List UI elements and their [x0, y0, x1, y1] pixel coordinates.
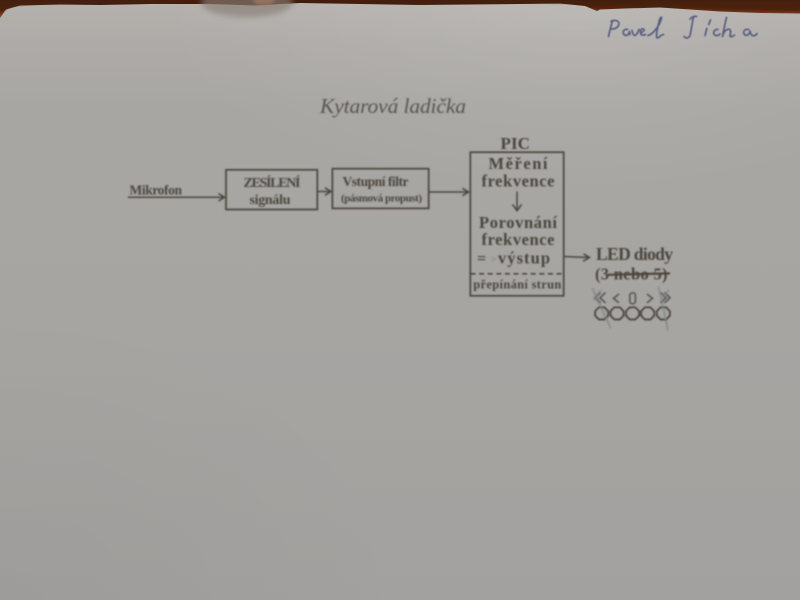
svg-text:přepínání strun: přepínání strun: [473, 278, 561, 292]
svg-text:(pásmová propust): (pásmová propust): [341, 193, 422, 205]
svg-text:výstup: výstup: [498, 249, 550, 268]
svg-text:PIC: PIC: [500, 134, 530, 153]
svg-text:ZESÍLENÍ: ZESÍLENÍ: [244, 174, 301, 191]
svg-text:Vstupní filtr: Vstupní filtr: [343, 174, 409, 189]
svg-text:LED diody: LED diody: [596, 244, 673, 264]
svg-text:frekvence: frekvence: [482, 230, 555, 249]
svg-text:=: =: [477, 251, 486, 268]
svg-text:Měření: Měření: [489, 154, 548, 173]
svg-text:Mikrofon: Mikrofon: [130, 183, 183, 198]
svg-text:>: >: [491, 254, 497, 266]
svg-text:Kytarová ladička: Kytarová ladička: [319, 94, 466, 118]
svg-text:signálu: signálu: [250, 193, 291, 208]
svg-text:frekvence: frekvence: [482, 172, 555, 191]
